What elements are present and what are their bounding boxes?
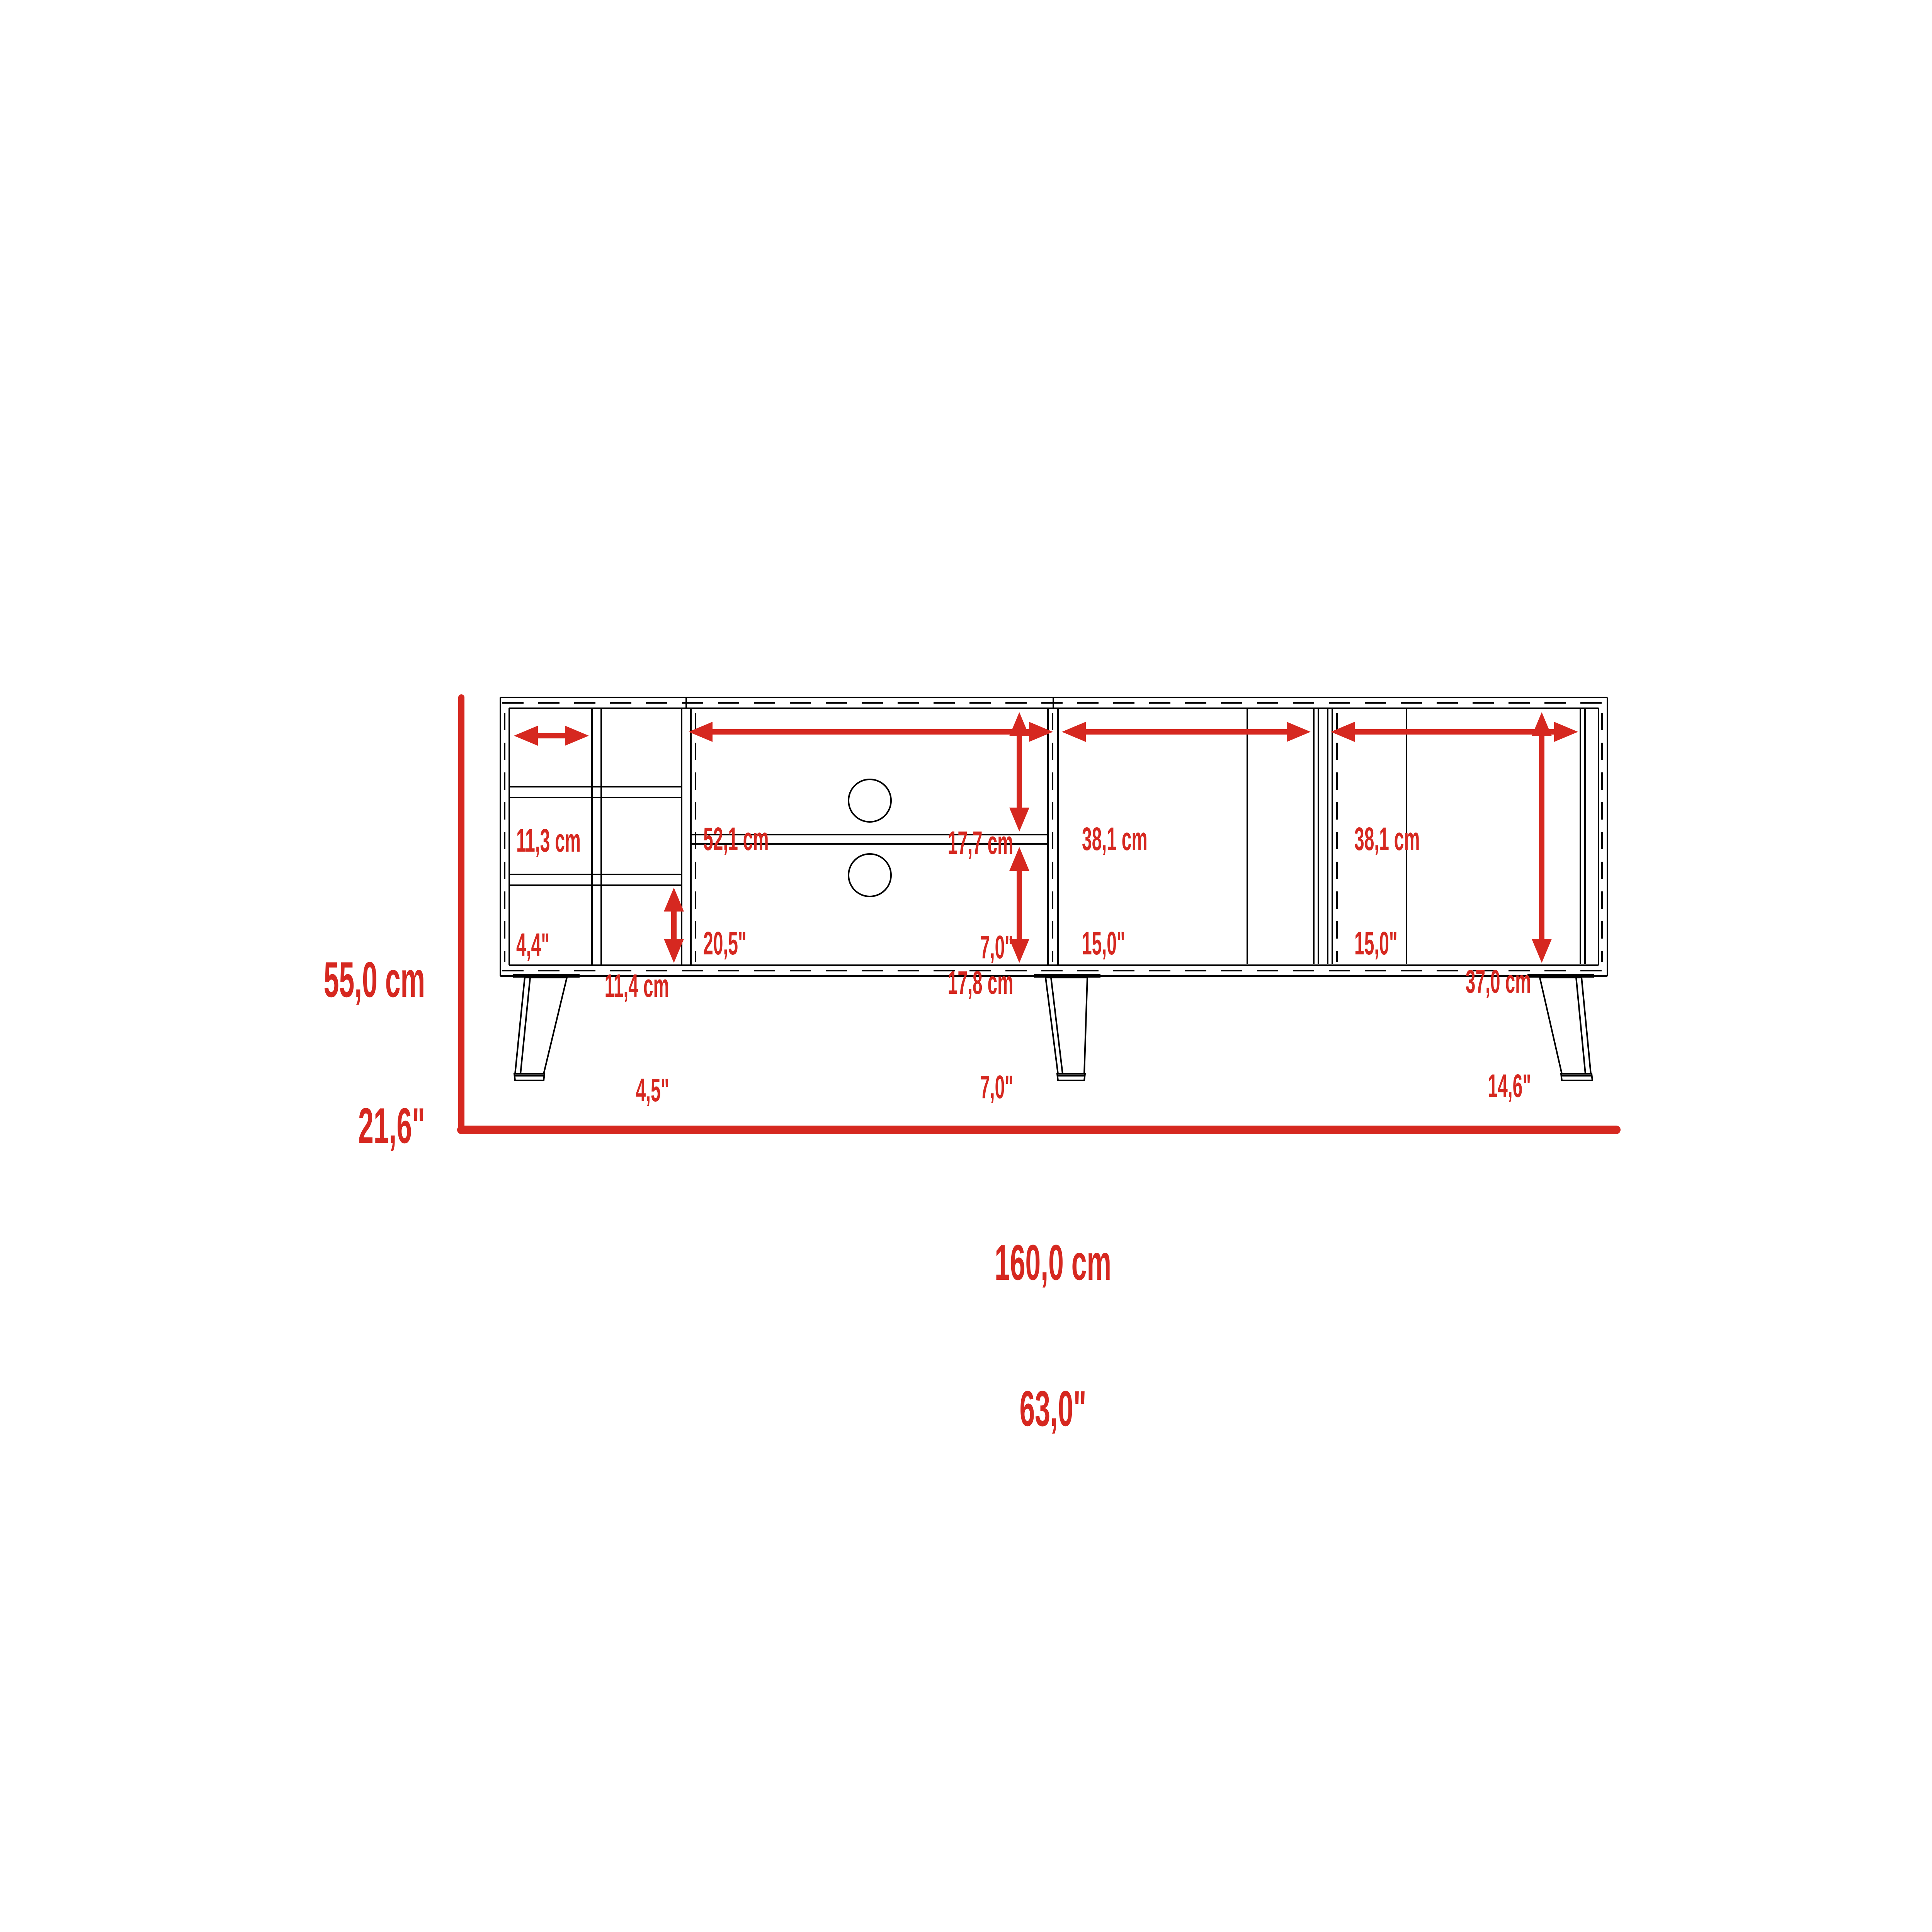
arrow-left-door-width [1062,722,1311,742]
dim-value-cm: 52,1 cm [703,821,769,856]
dim-value-inches: 63,0" [989,1384,1117,1433]
dim-label-right-door-width: 38,1 cm 15,0" [1354,752,1420,1030]
dim-label-media-opening-width: 52,1 cm 20,5" [703,752,769,1030]
dim-value-inches: 20,5" [703,926,769,961]
cable-hole-top [849,779,891,822]
dim-value-cm: 160,0 cm [989,1238,1117,1287]
arrow-door-opening-height [1532,712,1552,963]
dim-value-cm: 38,1 cm [1082,821,1148,856]
dim-label-door-opening-height: 37,0 cm 14,6" [1465,895,1531,1173]
dim-label-media-lower-height: 17,8 cm 7,0" [947,896,1013,1174]
dim-value-cm: 38,1 cm [1354,821,1420,856]
dim-value-inches: 15,0" [1354,926,1420,961]
dim-value-cm: 55,0 cm [324,955,425,1004]
dim-value-inches: 14,6" [1465,1068,1531,1103]
dim-label-overall-height: 55,0 cm 21,6" [324,858,425,1247]
dim-label-wine-cubby-height: 11,4 cm 4,5" [605,899,669,1177]
dim-value-cm: 17,7 cm [947,825,1013,860]
furniture-dimension-diagram: 11,3 cm 4,4" 52,1 cm 20,5" 17,7 cm 7,0" … [0,0,1932,1932]
right-leg [1527,974,1594,1080]
dim-label-wine-cubby-width: 11,3 cm 4,4" [516,753,581,1032]
dim-value-cm: 17,8 cm [947,965,1013,1000]
cable-hole-bottom [849,854,891,896]
dim-value-cm: 11,4 cm [605,968,669,1003]
dim-value-inches: 7,0" [947,1070,1013,1104]
arrow-wine-cubby-width [514,726,589,746]
dim-value-inches: 15,0" [1082,926,1148,961]
dim-label-overall-width: 160,0 cm 63,0" [989,1141,1117,1530]
dim-value-inches: 21,6" [324,1101,425,1150]
arrow-media-opening-width [689,722,1053,742]
dim-value-cm: 11,3 cm [516,823,581,858]
dim-value-inches: 4,5" [605,1073,669,1107]
legs [513,974,1594,1080]
dim-label-left-door-width: 38,1 cm 15,0" [1082,752,1148,1030]
dim-value-inches: 4,4" [516,927,581,962]
dim-value-cm: 37,0 cm [1465,964,1531,999]
